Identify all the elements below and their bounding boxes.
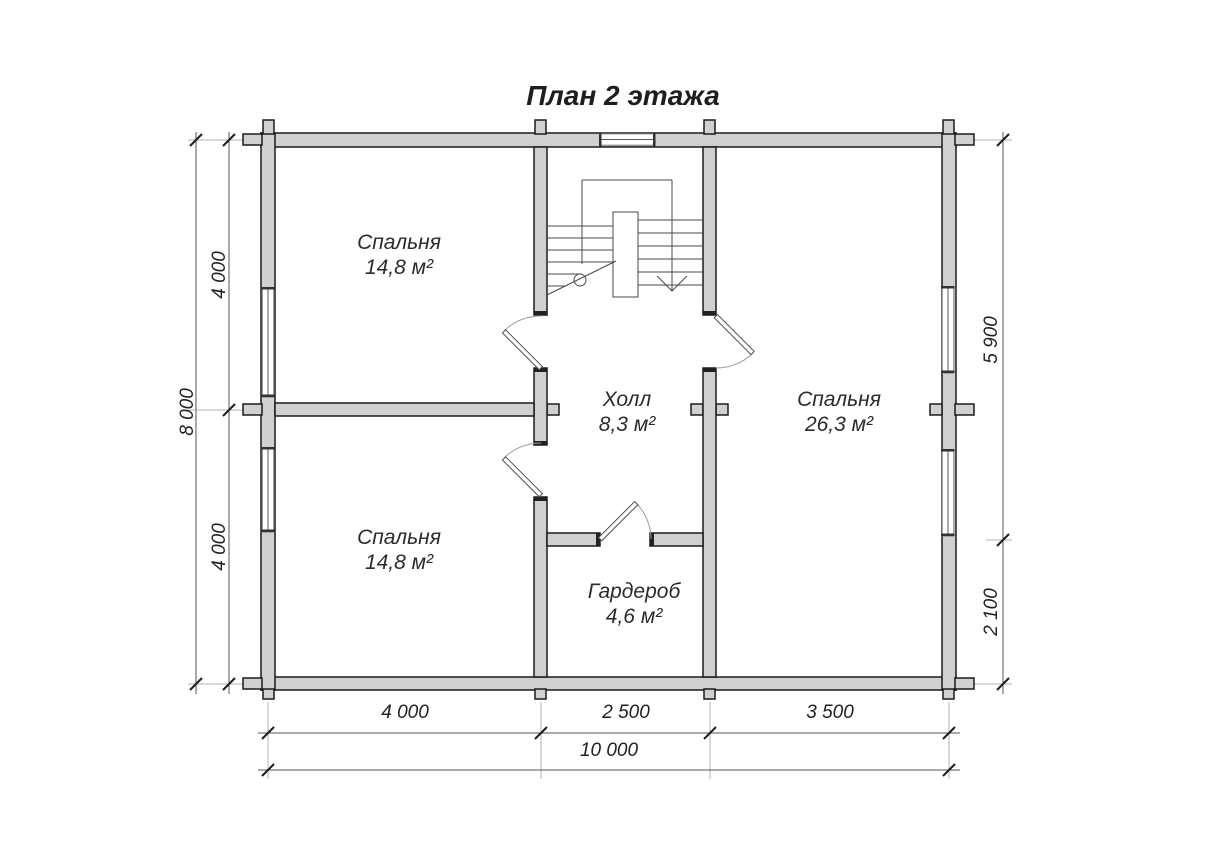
room-label-bedroom-right: Спальня 26,3 м² (797, 387, 881, 437)
room-name: Спальня (357, 230, 441, 255)
door-bedroom-top-left (502, 316, 542, 370)
staircase (547, 180, 703, 297)
room-name: Гардероб (588, 579, 681, 604)
room-name: Спальня (357, 525, 441, 550)
room-label-bedroom-bottom-left: Спальня 14,8 м² (357, 525, 441, 575)
room-label-wardrobe: Гардероб 4,6 м² (588, 579, 681, 629)
room-area: 8,3 м² (599, 412, 655, 437)
window-top (599, 133, 656, 147)
dim-left-lower: 4 000 (209, 523, 231, 571)
dim-left-upper: 4 000 (209, 251, 231, 299)
window-left-lower (261, 447, 275, 532)
dim-bottom-segment-1: 4 000 (381, 702, 429, 724)
room-area: 4,6 м² (588, 604, 681, 629)
dim-bottom-segment-3: 3 500 (806, 702, 854, 724)
door-bedroom-bottom-left (502, 443, 542, 497)
room-name: Спальня (797, 387, 881, 412)
room-area: 14,8 м² (357, 550, 441, 575)
window-right-lower (941, 449, 955, 536)
window-right-upper (941, 286, 955, 373)
floor-plan-canvas: План 2 этажа Спальня 14,8 м² Спальня 14,… (0, 0, 1214, 858)
room-area: 26,3 м² (797, 412, 881, 437)
dim-right-upper: 5 900 (981, 316, 1003, 364)
stair-newel (613, 212, 638, 297)
room-area: 14,8 м² (357, 255, 441, 280)
stair-break-line (547, 261, 616, 295)
room-label-bedroom-top-left: Спальня 14,8 м² (357, 230, 441, 280)
window-left-upper (261, 287, 275, 397)
stair-break-circle (574, 274, 586, 286)
dim-bottom-segment-2: 2 500 (602, 702, 650, 724)
room-label-hall: Холл 8,3 м² (599, 387, 655, 437)
windows (261, 133, 955, 536)
dim-bottom-total: 10 000 (580, 740, 638, 762)
room-name: Холл (599, 387, 655, 412)
door-bedroom-right (714, 315, 754, 368)
door-wardrobe (599, 502, 651, 541)
stair-steps-right (638, 220, 703, 285)
stair-steps-left (547, 226, 613, 286)
dim-right-lower: 2 100 (981, 588, 1003, 636)
dim-left-total: 8 000 (177, 388, 199, 436)
page-title: План 2 этажа (526, 80, 720, 112)
